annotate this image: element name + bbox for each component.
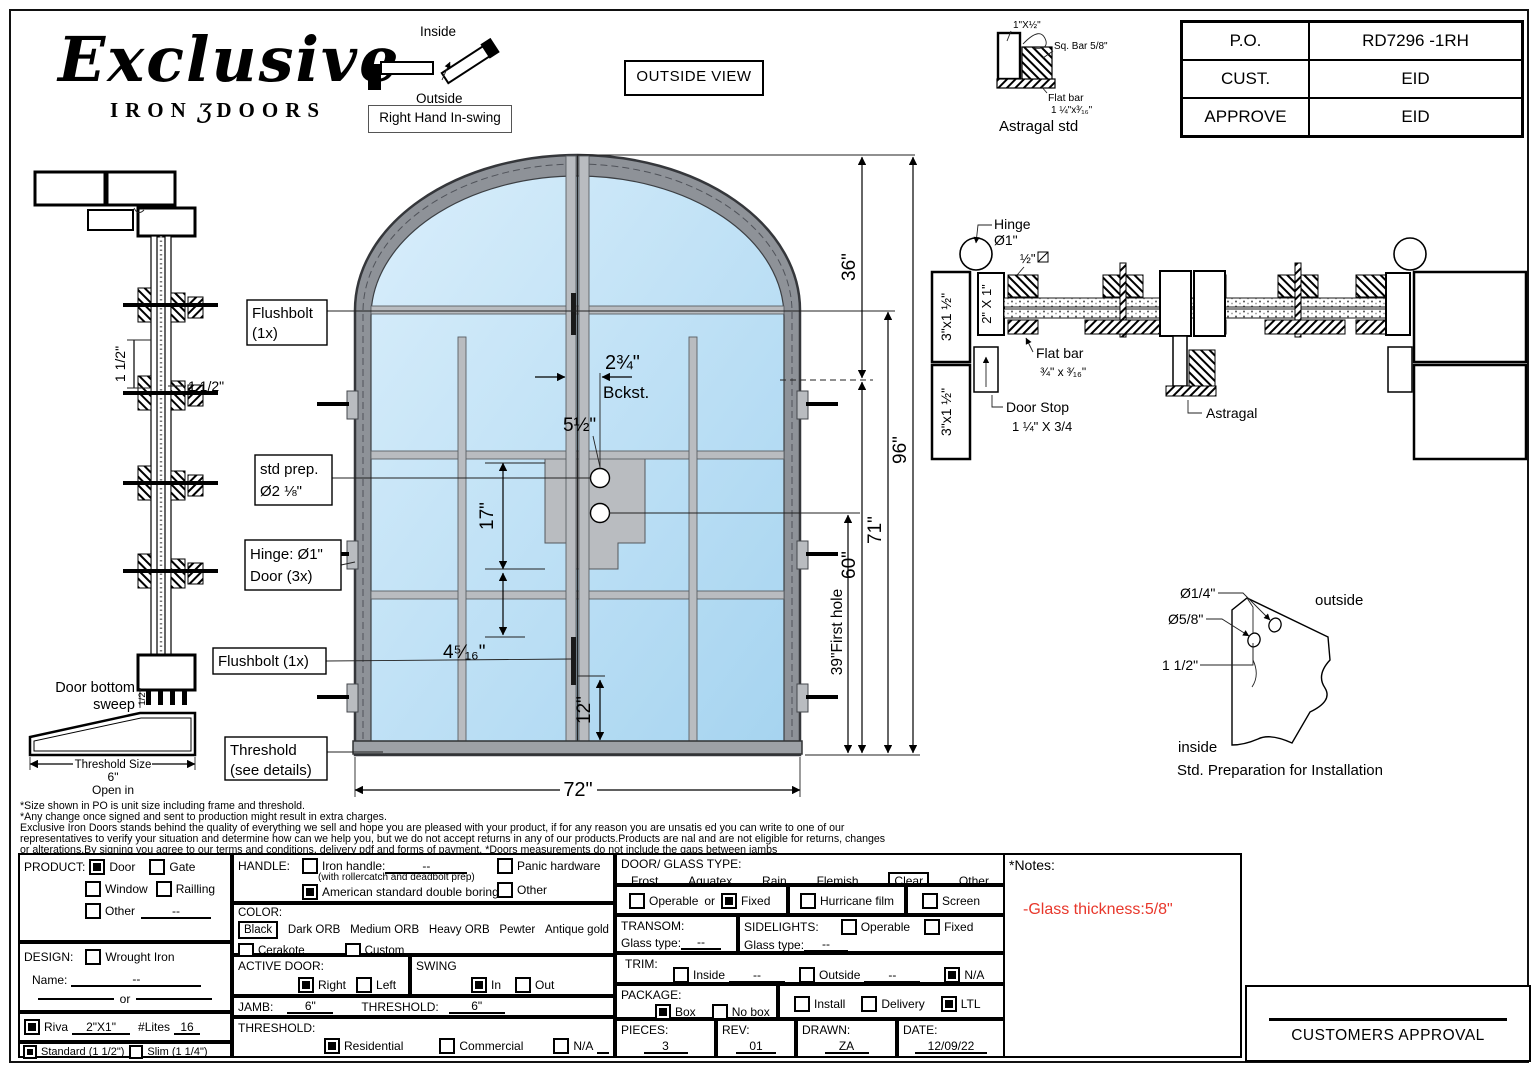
product-other-label: Other bbox=[105, 904, 135, 918]
design-section: DESIGN: Wrought Iron Name: -- or bbox=[18, 942, 232, 1012]
swing-outside-label: Outside bbox=[416, 91, 463, 106]
flushbolt-bottom bbox=[571, 637, 576, 685]
logo-ornament: ʒ bbox=[197, 94, 212, 124]
customers-approval-label: CUSTOMERS APPROVAL bbox=[1247, 1027, 1529, 1045]
install-outside-label: outside bbox=[1315, 592, 1363, 609]
threshold-na-label: N/A bbox=[573, 1039, 593, 1053]
dim-39-first-hole: 39"First hole bbox=[829, 515, 848, 753]
swing-caption-box: Right Hand In-swing bbox=[368, 105, 512, 133]
drawn-label: DRAWN: bbox=[802, 1023, 850, 1037]
panic-hardware-label: Panic hardware bbox=[517, 859, 600, 873]
flushbolt-top-callout: Flushbolt (1x) bbox=[247, 300, 327, 345]
flushbolt-top-label2: (1x) bbox=[252, 325, 278, 342]
iron-handle-subtext: (with rollercatch and deadbolt prep) bbox=[318, 872, 475, 883]
product-gate-label: Gate bbox=[169, 860, 195, 874]
color-antique-gold[interactable]: Antique gold bbox=[545, 924, 609, 936]
trim-title: TRIM: bbox=[625, 957, 658, 971]
residential-label: Residential bbox=[344, 1039, 403, 1053]
american-boring-label: American standard double boring bbox=[322, 885, 499, 899]
right-door-stop bbox=[1388, 347, 1412, 392]
open-in-label: Open in bbox=[92, 783, 134, 797]
std-prep-label2: Ø2 ⅛" bbox=[260, 483, 302, 500]
po-value: RD7296 -1RH bbox=[1309, 22, 1522, 60]
checkbox-slim[interactable] bbox=[129, 1045, 143, 1059]
checkbox-panic-hardware[interactable] bbox=[497, 858, 513, 874]
color-dark-orb[interactable]: Dark ORB bbox=[288, 924, 340, 936]
approve-label: APPROVE bbox=[1182, 98, 1309, 136]
transom-title: TRANSOM: bbox=[621, 919, 732, 933]
jamb-label-2: 3"x1 ½" bbox=[938, 388, 954, 436]
color-title: COLOR: bbox=[238, 907, 609, 919]
active-door-title: ACTIVE DOOR: bbox=[238, 959, 404, 973]
checkbox-gate[interactable] bbox=[149, 859, 165, 875]
date-value[interactable]: 12/09/22 bbox=[915, 1039, 987, 1054]
dim-71-text: 71" bbox=[865, 516, 886, 544]
standard-label: Standard (1 1/2") bbox=[41, 1046, 124, 1058]
checkbox-threshold-na[interactable] bbox=[553, 1038, 569, 1054]
dim-12-text: 12" bbox=[574, 696, 595, 724]
checkbox-box[interactable] bbox=[655, 1004, 671, 1020]
hinge-section-label1: Hinge bbox=[994, 216, 1031, 232]
design-name-value[interactable]: -- bbox=[71, 972, 201, 987]
open-door-icon bbox=[440, 38, 500, 85]
color-section: COLOR: Black Dark ORB Medium ORB Heavy O… bbox=[232, 903, 615, 955]
backset-value: 2¾" bbox=[605, 352, 640, 374]
install-dim-1half: 1 1/2" bbox=[1162, 657, 1198, 673]
dim-39-text: 39"First hole bbox=[829, 589, 846, 675]
flushbolt-bottom-label: Flushbolt (1x) bbox=[218, 653, 309, 670]
jamb-threshold-title: THRESHOLD: bbox=[361, 1000, 438, 1014]
half-square-label: ½" bbox=[1020, 251, 1036, 266]
sidelights-glass-value[interactable]: -- bbox=[804, 937, 848, 952]
checkbox-residential[interactable] bbox=[324, 1038, 340, 1054]
color-medium-orb[interactable]: Medium ORB bbox=[350, 924, 419, 936]
checkbox-riva[interactable] bbox=[24, 1019, 40, 1035]
swing-inside-label: Inside bbox=[420, 24, 456, 39]
commercial-label: Commercial bbox=[459, 1039, 523, 1053]
pieces-label: PIECES: bbox=[621, 1023, 668, 1037]
design-or-label: or bbox=[120, 992, 131, 1006]
astragal-sqbar bbox=[1022, 47, 1052, 80]
checkbox-swing-in[interactable] bbox=[471, 977, 487, 993]
or-label: or bbox=[704, 894, 715, 908]
checkbox-delivery[interactable] bbox=[861, 996, 877, 1012]
company-logo: Exclusive IRON ʒ DOORS bbox=[58, 30, 378, 124]
handle-section: HANDLE: Iron handle: -- (with rollercatc… bbox=[232, 853, 615, 903]
glass-type-title: DOOR/ GLASS TYPE: bbox=[621, 857, 999, 871]
checkbox-standard[interactable] bbox=[23, 1045, 37, 1059]
hinge-label1: Hinge: Ø1" bbox=[250, 546, 323, 563]
product-title: PRODUCT: bbox=[24, 860, 85, 874]
astragal-dim-label: 1"X½" bbox=[1013, 20, 1041, 31]
install-dim-fiveeighth: Ø5/8" bbox=[1168, 611, 1203, 627]
astragal-std-detail: 1"X½" Sq. Bar 5/8" Flat bar 1 ¼"x³⁄₁₆" A… bbox=[985, 15, 1130, 145]
checkbox-trim-outside[interactable] bbox=[799, 967, 815, 983]
checkbox-iron-handle[interactable] bbox=[302, 858, 318, 874]
product-railling-label: Railling bbox=[176, 882, 215, 896]
handle-prep-hole bbox=[591, 469, 610, 488]
std-prep-callout: std prep. Ø2 ⅛" bbox=[255, 455, 332, 505]
handle-title: HANDLE: bbox=[238, 859, 290, 873]
sidelights-glass-label: Glass type: bbox=[744, 938, 804, 952]
dim-4516-text: 4⁵⁄₁₆" bbox=[443, 642, 485, 663]
trim-section: TRIM: Inside -- Outside -- N/A bbox=[615, 953, 1005, 984]
swing-out-label: Out bbox=[535, 978, 554, 992]
delivery-section: Install Delivery LTL bbox=[778, 984, 1005, 1019]
product-door-label: Door bbox=[109, 860, 135, 874]
astragal-section bbox=[1166, 336, 1216, 413]
right-leaf-stile bbox=[1386, 273, 1410, 335]
riva-lites-label: #Lites bbox=[138, 1020, 170, 1034]
active-right-label: Right bbox=[318, 978, 346, 992]
active-door-section: ACTIVE DOOR: Right Left bbox=[232, 955, 410, 996]
notes-title: *Notes: bbox=[1009, 857, 1236, 873]
astragal-flatbar-label1: Flat bar bbox=[1048, 92, 1084, 104]
trim-outside-value[interactable]: -- bbox=[864, 968, 920, 983]
rev-section: REV: 01 bbox=[716, 1019, 796, 1058]
approve-value: EID bbox=[1309, 98, 1522, 136]
hurricane-section: Hurricane film bbox=[788, 885, 906, 915]
checkbox-trim-na[interactable] bbox=[944, 967, 960, 983]
jamb-value[interactable]: 6" bbox=[287, 999, 333, 1014]
nobox-label: No box bbox=[732, 1005, 770, 1019]
dim-96: 96" bbox=[890, 157, 913, 753]
drawn-value[interactable]: ZA bbox=[825, 1039, 869, 1054]
astragal-section-label: Astragal bbox=[1206, 405, 1257, 421]
transom-glass-label: Glass type: bbox=[621, 936, 681, 950]
checkbox-screen[interactable] bbox=[922, 893, 938, 909]
jamb-threshold-value[interactable]: 6" bbox=[449, 999, 505, 1014]
riva-lites-value[interactable]: 16 bbox=[174, 1020, 200, 1035]
dim-72-text: 72" bbox=[563, 779, 592, 801]
sweep-label-1: Door bottom bbox=[55, 680, 135, 696]
hinge-label2: Door (3x) bbox=[250, 568, 313, 585]
notes-body: -Glass thickness:5/8" bbox=[1023, 901, 1236, 919]
design-wrought-label: Wrought Iron bbox=[105, 950, 174, 964]
plan-cross-section: 3"x1 ½" 3"x1 ½" Hinge Ø1" 2" X 1" ½" bbox=[930, 205, 1530, 475]
pieces-section: PIECES: 3 bbox=[615, 1019, 716, 1058]
handle-other-label: Other bbox=[517, 883, 547, 897]
transom-section: TRANSOM: Glass type: -- bbox=[615, 915, 738, 953]
checkbox-product-other[interactable] bbox=[85, 903, 101, 919]
pieces-value[interactable]: 3 bbox=[644, 1039, 688, 1054]
std-prep-label1: std prep. bbox=[260, 461, 318, 478]
cust-label: CUST. bbox=[1182, 60, 1309, 98]
signature-line[interactable] bbox=[1269, 1018, 1507, 1021]
hinge-section-label2: Ø1" bbox=[994, 232, 1018, 248]
checkbox-sidelights-operable[interactable] bbox=[841, 919, 857, 935]
closed-door-icon bbox=[368, 62, 433, 90]
checkbox-window[interactable] bbox=[85, 881, 101, 897]
dim-72: 72" bbox=[355, 757, 800, 801]
operable-label: Operable bbox=[649, 894, 698, 908]
threshold-title: THRESHOLD: bbox=[238, 1021, 609, 1035]
product-window-label: Window bbox=[105, 882, 148, 896]
outside-view-label: OUTSIDE VIEW bbox=[624, 60, 764, 96]
swing-in-label: In bbox=[491, 978, 501, 992]
product-section: PRODUCT: Door Gate Window Railling Other… bbox=[18, 853, 232, 942]
sweep-label-2: sweep bbox=[93, 697, 135, 713]
meeting-stile-left bbox=[1160, 271, 1191, 336]
astragal-sqbar-label: Sq. Bar 5/8" bbox=[1054, 41, 1108, 52]
logo-script-text: Exclusive bbox=[58, 30, 378, 90]
iron-handle-label: Iron handle: bbox=[322, 859, 385, 873]
trim-inside-label: Inside bbox=[693, 968, 725, 982]
swing-title: SWING bbox=[416, 959, 609, 973]
swing-section: SWING In Out bbox=[410, 955, 615, 996]
riva-section: Riva 2"X1" #Lites 16 bbox=[18, 1012, 232, 1042]
threshold-section: THRESHOLD: Residential Commercial N/A bbox=[232, 1017, 615, 1058]
threshold-callout: Threshold (see details) bbox=[225, 737, 327, 780]
checkbox-door[interactable] bbox=[89, 859, 105, 875]
astragal-swirl bbox=[1023, 34, 1046, 49]
dim-71: 71" bbox=[865, 312, 888, 753]
threshold-na-value[interactable] bbox=[597, 1039, 609, 1054]
deadbolt-prep-hole bbox=[591, 504, 610, 523]
dim-36-text: 36" bbox=[839, 253, 860, 281]
astragal-tube bbox=[998, 33, 1020, 79]
disclaimer-line: representatives to verify your situation… bbox=[20, 834, 1525, 845]
bracket-outline bbox=[1232, 598, 1330, 745]
installation-detail: Ø1/4" Ø5/8" 1 1/2" outside inside Std. P… bbox=[1140, 565, 1470, 800]
flushbolt-top-label1: Flushbolt bbox=[252, 305, 314, 322]
sidelights-operable-label: Operable bbox=[861, 920, 910, 934]
checkbox-wrought-iron[interactable] bbox=[85, 949, 101, 965]
disclaimer-text: *Size shown in PO is unit size including… bbox=[20, 801, 1525, 856]
notes-section: *Notes: -Glass thickness:5/8" bbox=[1003, 853, 1242, 1058]
operable-fixed-section: Operable or Fixed bbox=[615, 885, 788, 915]
side-profile-drawing: 1 1/2" 1 1/2" Door bottom sweep 1/2 Thre… bbox=[18, 160, 235, 810]
door-threshold bbox=[353, 741, 802, 754]
sidelights-fixed-label: Fixed bbox=[944, 920, 973, 934]
astragal-flatbar-label2: 1 ¼"x³⁄₁₆" bbox=[1051, 104, 1093, 116]
door-stop-label2: 1 ¼" X 3/4 bbox=[1012, 419, 1072, 434]
profile-header bbox=[35, 172, 195, 236]
dim-60: 60" bbox=[839, 382, 862, 753]
checkbox-handle-other[interactable] bbox=[497, 882, 513, 898]
po-label: P.O. bbox=[1182, 22, 1309, 60]
checkbox-hurricane[interactable] bbox=[800, 893, 816, 909]
frame-type-section: Standard (1 1/2") Slim (1 1/4") bbox=[18, 1042, 232, 1058]
checkbox-install[interactable] bbox=[794, 996, 810, 1012]
profile-stile bbox=[151, 236, 171, 656]
drawn-section: DRAWN: ZA bbox=[796, 1019, 897, 1058]
rev-value[interactable]: 01 bbox=[736, 1039, 776, 1054]
slim-label: Slim (1 1/4") bbox=[147, 1046, 207, 1058]
sidelights-section: SIDELIGHTS: Operable Fixed Glass type: -… bbox=[738, 915, 1005, 953]
checkbox-railling[interactable] bbox=[156, 881, 172, 897]
door-elevation-drawing: Flushbolt (1x) std prep. Ø2 ⅛" Hinge: Ø1… bbox=[205, 145, 930, 810]
active-left-label: Left bbox=[376, 978, 396, 992]
color-heavy-orb[interactable]: Heavy ORB bbox=[429, 924, 490, 936]
screen-section: Screen bbox=[906, 885, 1005, 915]
astragal-flatbar bbox=[997, 79, 1055, 88]
meeting-stile-right bbox=[1194, 271, 1225, 336]
checkbox-ltl[interactable] bbox=[941, 996, 957, 1012]
flushbolt-top bbox=[571, 293, 576, 335]
logo-iron-text: IRON bbox=[110, 98, 193, 122]
jamb-title: JAMB: bbox=[238, 1000, 273, 1014]
jamb-section: JAMB: 6" THRESHOLD: 6" bbox=[232, 996, 615, 1017]
checkbox-american-boring[interactable] bbox=[302, 884, 318, 900]
checkbox-sidelights-fixed[interactable] bbox=[924, 919, 940, 935]
hinge-barrel-right bbox=[1394, 238, 1426, 270]
dim-5half: 5½" bbox=[563, 415, 596, 436]
date-label: DATE: bbox=[903, 1023, 937, 1037]
color-pewter[interactable]: Pewter bbox=[499, 924, 535, 936]
install-inside-label: inside bbox=[1178, 739, 1217, 756]
ltl-label: LTL bbox=[961, 997, 981, 1011]
design-name-label: Name: bbox=[32, 973, 67, 987]
dim-17-text: 17" bbox=[477, 502, 498, 530]
threshold-label2: (see details) bbox=[230, 762, 312, 779]
dim-60-text: 60" bbox=[839, 551, 860, 579]
delivery-label: Delivery bbox=[881, 997, 924, 1011]
install-caption: Std. Preparation for Installation bbox=[1177, 762, 1383, 779]
shop-drawing-sheet: { "logo": {"script": "Exclusive", "iron"… bbox=[0, 0, 1536, 1068]
threshold-label1: Threshold bbox=[230, 742, 297, 759]
install-dim-quarter: Ø1/4" bbox=[1180, 585, 1215, 601]
checkbox-active-right[interactable] bbox=[298, 977, 314, 993]
checkbox-trim-inside[interactable] bbox=[673, 967, 689, 983]
astragal-caption: Astragal std bbox=[999, 118, 1078, 135]
checkbox-fixed[interactable] bbox=[721, 893, 737, 909]
hinge-callout: Hinge: Ø1" Door (3x) bbox=[245, 540, 341, 590]
flat-bar-label2: ¾" x ³⁄₁₆" bbox=[1040, 365, 1086, 379]
trim-outside-label: Outside bbox=[819, 968, 860, 982]
fixed-label: Fixed bbox=[741, 894, 770, 908]
product-other-value[interactable]: -- bbox=[141, 904, 211, 919]
rev-label: REV: bbox=[722, 1023, 750, 1037]
right-jamb-1 bbox=[1414, 272, 1526, 362]
right-jamb-2 bbox=[1414, 365, 1526, 459]
customers-approval-box: CUSTOMERS APPROVAL bbox=[1245, 985, 1531, 1062]
package-title: PACKAGE: bbox=[621, 988, 772, 1002]
checkbox-operable[interactable] bbox=[629, 893, 645, 909]
package-section: PACKAGE: Box No box bbox=[615, 984, 778, 1019]
profile-dim-1half-v-text: 1 1/2" bbox=[112, 346, 128, 382]
sidelights-title: SIDELIGHTS: bbox=[744, 920, 819, 934]
sweep-half-dim: 1/2 bbox=[137, 692, 148, 705]
flat-bar-label1: Flat bar bbox=[1036, 345, 1084, 361]
riva-size-value[interactable]: 2"X1" bbox=[72, 1020, 130, 1035]
checkbox-commercial[interactable] bbox=[439, 1038, 455, 1054]
dim-36: 36" bbox=[839, 157, 862, 378]
transom-glass-value[interactable]: -- bbox=[681, 935, 721, 950]
box-label: Box bbox=[675, 1005, 696, 1019]
color-black-selected[interactable]: Black bbox=[238, 921, 278, 939]
screen-label: Screen bbox=[942, 894, 980, 908]
design-title: DESIGN: bbox=[24, 950, 73, 964]
trim-inside-value[interactable]: -- bbox=[729, 968, 785, 983]
checkbox-nobox[interactable] bbox=[712, 1004, 728, 1020]
jamb-label-1: 3"x1 ½" bbox=[938, 293, 954, 341]
dim-96-text: 96" bbox=[890, 436, 911, 464]
flushbolt-bottom-callout: Flushbolt (1x) bbox=[213, 648, 326, 674]
leaf-stile-label: 2" X 1" bbox=[979, 284, 994, 324]
trim-na-label: N/A bbox=[964, 968, 984, 982]
checkbox-active-left[interactable] bbox=[356, 977, 372, 993]
install-label: Install bbox=[814, 997, 845, 1011]
cust-value: EID bbox=[1309, 60, 1522, 98]
glass-type-section: DOOR/ GLASS TYPE: Frost Aquatex Rain Fle… bbox=[615, 853, 1005, 885]
logo-doors-text: DOORS bbox=[216, 98, 326, 122]
threshold-size-value: 6" bbox=[108, 770, 119, 784]
backset-label: Bckst. bbox=[603, 383, 649, 402]
date-section: DATE: 12/09/22 bbox=[897, 1019, 1005, 1058]
riva-label: Riva bbox=[44, 1020, 68, 1034]
hurricane-label: Hurricane film bbox=[820, 894, 894, 908]
po-table: P.O. RD7296 -1RH CUST. EID APPROVE EID bbox=[1180, 20, 1524, 138]
door-stop-label1: Door Stop bbox=[1006, 399, 1069, 415]
checkbox-swing-out[interactable] bbox=[515, 977, 531, 993]
